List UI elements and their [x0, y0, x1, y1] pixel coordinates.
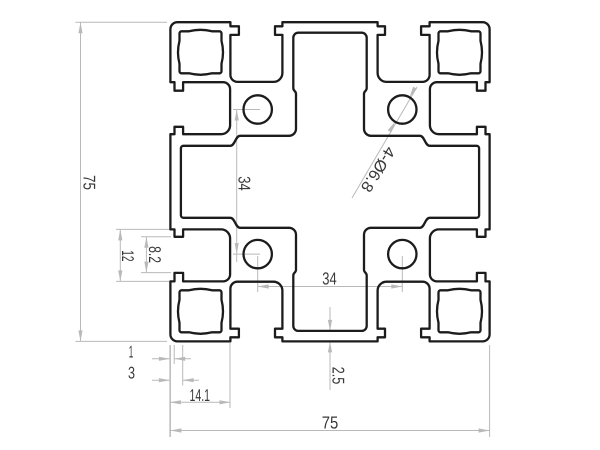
- svg-text:75: 75: [322, 413, 339, 433]
- svg-text:3: 3: [128, 364, 135, 383]
- svg-text:34: 34: [235, 176, 254, 191]
- svg-text:75: 75: [79, 175, 98, 190]
- svg-text:1: 1: [129, 342, 134, 361]
- svg-text:14.1: 14.1: [190, 386, 211, 405]
- svg-text:34: 34: [322, 268, 337, 288]
- svg-text:2.5: 2.5: [328, 367, 347, 385]
- svg-text:8.2: 8.2: [145, 246, 164, 263]
- svg-text:12: 12: [118, 250, 137, 261]
